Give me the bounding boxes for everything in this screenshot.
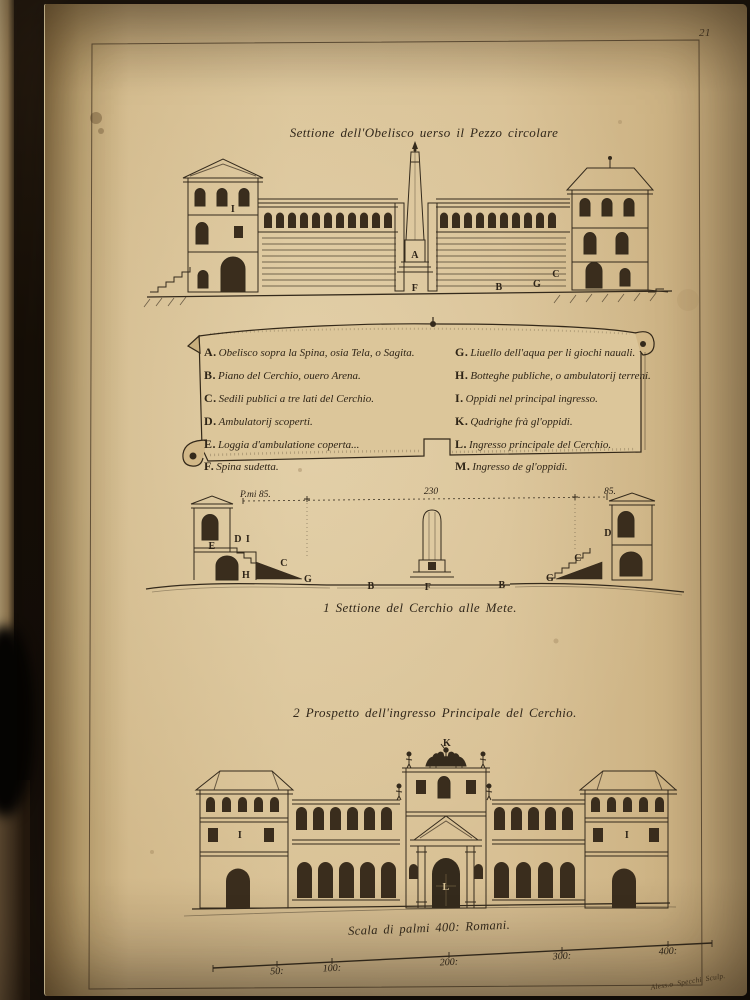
legend-text-d: Ambulatorij scoperti.: [219, 416, 313, 428]
scale-bar: [213, 940, 712, 972]
scale-tick-200: 200:: [439, 957, 458, 969]
label-i-top: I: [231, 204, 235, 215]
legend-key-b: B.: [204, 368, 216, 382]
label-f-top: F: [412, 283, 418, 294]
legend-item-h: H.Botteghe publiche, o ambulatorij terre…: [455, 368, 651, 383]
legend-item-k: K.Qadrighe frà gl'oppidi.: [455, 414, 573, 429]
label-i-mid: I: [246, 534, 250, 545]
legend-text-k: Qadrighe frà gl'oppidi.: [470, 416, 572, 428]
legend-text-i: Oppidi nel principal ingresso.: [466, 393, 598, 405]
legend-key-m: M.: [455, 459, 470, 473]
label-i-bottom-right: I: [625, 830, 629, 841]
legend-item-b: B.Piano del Cerchio, ouero Arena.: [204, 368, 361, 383]
legend-key-g: G.: [455, 345, 468, 359]
dim-center: 230: [424, 487, 439, 497]
plate-title: Settione dell'Obelisco uerso il Pezzo ci…: [274, 125, 574, 141]
legend-key-h: H.: [455, 368, 468, 382]
legend-text-h: Botteghe publiche, o ambulatorij terreni…: [470, 370, 650, 382]
figure-middle-section: [146, 493, 684, 595]
legend-item-a: A.Obelisco sopra la Spina, osia Tela, o …: [204, 345, 414, 360]
caption-section: 1 Settione del Cerchio alle Mete.: [270, 600, 570, 616]
figure-bottom-facade: [184, 744, 677, 916]
label-d-mid-left: D: [234, 534, 242, 545]
legend-text-g: Liuello dell'aqua per li giochi nauali.: [470, 347, 635, 359]
label-g-mid-right: G: [546, 573, 554, 584]
label-i-bottom-left: I: [238, 830, 242, 841]
plate-engraving-svg: I A F B G C: [0, 0, 750, 1000]
legend-key-l: L.: [455, 437, 467, 451]
label-b-top: B: [496, 282, 503, 293]
label-e-mid: E: [209, 541, 216, 552]
label-c-mid-right: C: [574, 553, 582, 564]
label-l-bottom: L: [443, 882, 450, 893]
legend-item-c: C.Sedili publici a tre lati del Cerchio.: [204, 391, 374, 406]
legend-text-c: Sedili publici a tre lati del Cerchio.: [219, 393, 374, 405]
legend-key-d: D.: [204, 414, 217, 428]
legend-item-e: E.Loggia d'ambulatione coperta...: [204, 437, 359, 452]
legend-key-e: E.: [204, 437, 216, 451]
photo-of-book-page: I A F B G C: [0, 0, 750, 1000]
legend-key-f: F.: [204, 459, 214, 473]
legend-key-i: I.: [455, 391, 464, 405]
label-g-mid-left: G: [304, 574, 312, 585]
label-g-top: G: [533, 279, 541, 290]
legend-item-m: M.Ingresso de gl'oppidi.: [455, 459, 567, 474]
dim-right: 85.: [604, 487, 616, 497]
legend-text-l: Ingresso principale del Cerchio.: [469, 439, 611, 451]
label-c-mid-left: C: [280, 558, 288, 569]
legend-item-g: G.Liuello dell'aqua per li giochi nauali…: [455, 345, 635, 360]
legend-item-l: L.Ingresso principale del Cerchio.: [455, 437, 611, 452]
legend-item-f: F.Spina sudetta.: [204, 459, 279, 474]
figure-top-elevation: [144, 141, 672, 307]
label-b-mid-right: B: [499, 580, 506, 591]
legend-text-e: Loggia d'ambulatione coperta...: [218, 439, 359, 451]
scale-tick-50: 50:: [270, 966, 284, 978]
label-a-top: A: [411, 250, 419, 261]
label-f-mid: F: [425, 582, 431, 593]
plate-border: [89, 40, 702, 989]
legend-text-m: Ingresso de gl'oppidi.: [472, 461, 567, 473]
label-b-mid-left: B: [368, 581, 375, 592]
legend-item-i: I.Oppidi nel principal ingresso.: [455, 391, 598, 406]
label-k-bottom: K: [443, 738, 451, 749]
legend-text-b: Piano del Cerchio, ouero Arena.: [218, 370, 361, 382]
legend-key-k: K.: [455, 414, 468, 428]
page-number: 21: [699, 27, 711, 39]
legend-item-d: D.Ambulatorij scoperti.: [204, 414, 313, 429]
scale-tick-100: 100:: [322, 963, 341, 975]
legend-text-f: Spina sudetta.: [216, 461, 278, 473]
caption-prospetto: 2 Prospetto dell'ingresso Principale del…: [235, 705, 635, 721]
scale-tick-300: 300:: [551, 951, 571, 963]
label-d-mid-right: D: [604, 528, 612, 539]
dim-left: P.mi 85.: [239, 490, 271, 500]
legend-text-a: Obelisco sopra la Spina, osia Tela, o Sa…: [219, 347, 415, 359]
label-c-top: C: [552, 269, 560, 280]
label-h-mid: H: [242, 570, 250, 581]
scale-tick-400: 400:: [658, 946, 677, 958]
legend-key-a: A.: [204, 345, 217, 359]
legend-key-c: C.: [204, 391, 217, 405]
